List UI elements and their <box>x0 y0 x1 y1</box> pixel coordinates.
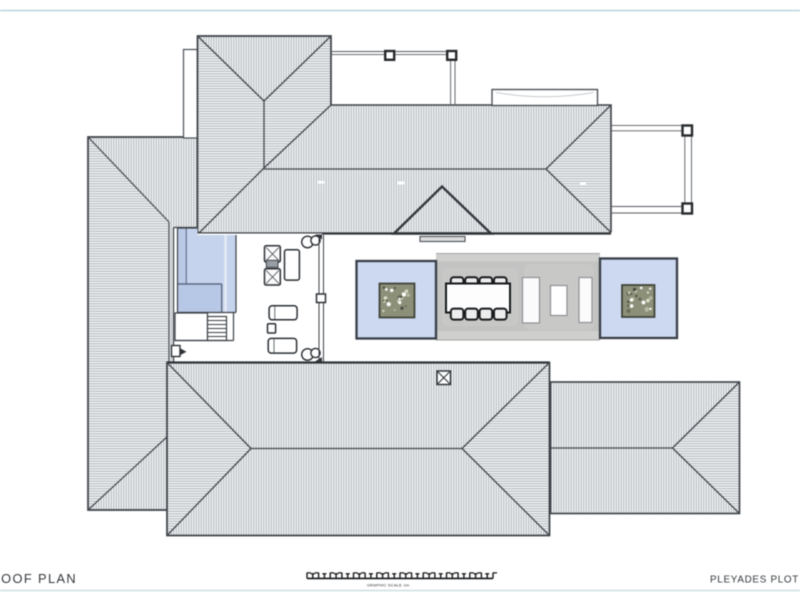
svg-text:PLEYADES PLOT N: PLEYADES PLOT N <box>710 575 800 586</box>
svg-text:ROOF PLAN: ROOF PLAN <box>0 571 77 586</box>
svg-text:GRAPHIC SCALE 1m: GRAPHIC SCALE 1m <box>367 583 410 588</box>
